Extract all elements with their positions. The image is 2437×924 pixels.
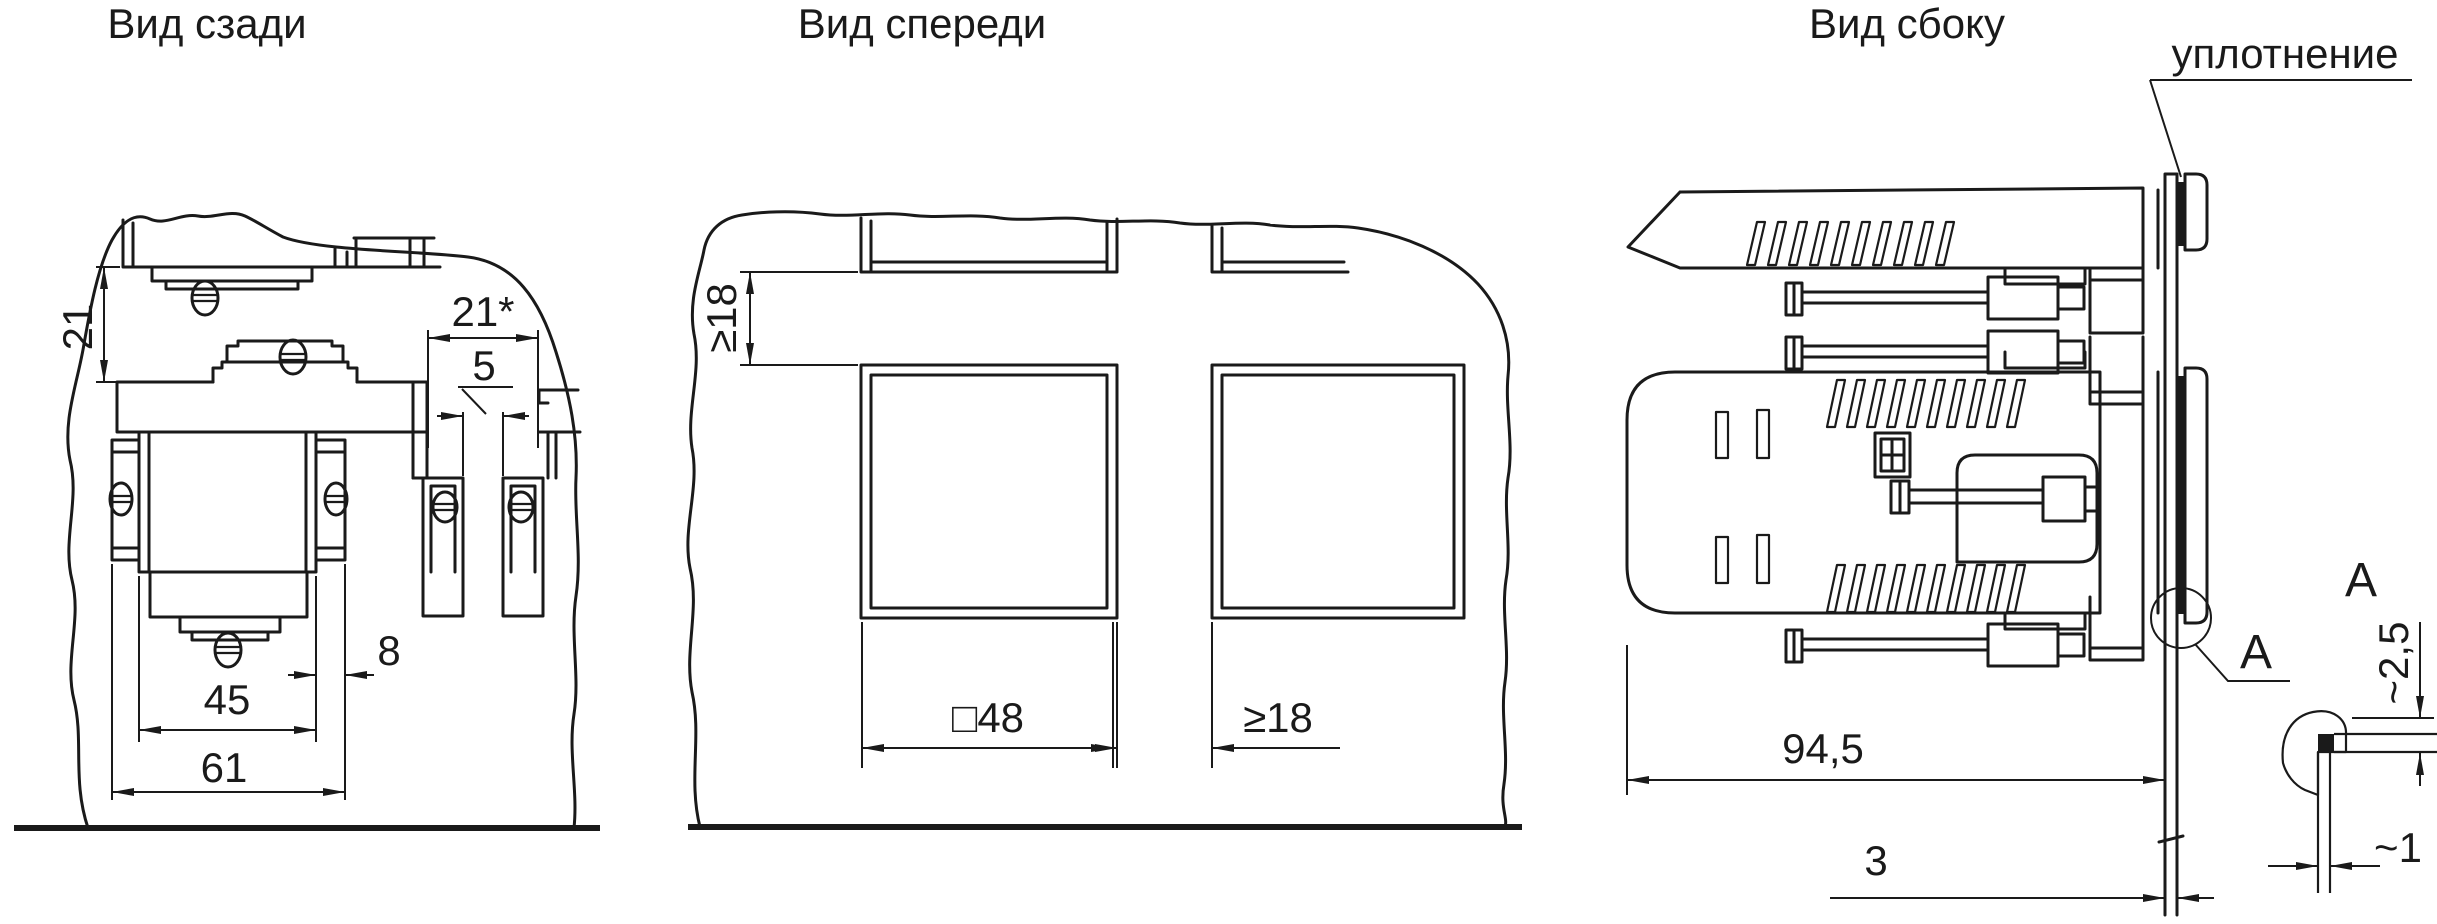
rear-left-bracket (109, 440, 139, 560)
front-dim-18h-label: ≥18 (1243, 694, 1313, 741)
rear-upper-unit (123, 220, 440, 315)
rear-dim-21-star-label: 21* (451, 288, 514, 335)
front-dim-48: □48 (862, 622, 1113, 768)
rear-dim-21-label: 21 (54, 304, 101, 351)
detail-marker: А (2151, 588, 2290, 681)
seal-compressed-zone (2318, 734, 2334, 752)
side-dim-3-label: 3 (1864, 837, 1887, 884)
side-dim-94-5-label: 94,5 (1782, 725, 1864, 772)
detail-marker-a-label: А (2240, 626, 2272, 679)
rear-dim-8: 8 (288, 564, 401, 800)
seal-callout: уплотнение (2150, 30, 2412, 177)
rear-view-title: Вид сзади (107, 0, 306, 47)
screw-icon (279, 340, 307, 374)
front-cutout-right (1212, 365, 1464, 618)
screw-icon (433, 492, 457, 522)
rear-main-unit-body (117, 382, 427, 667)
side-view-title: Вид сбоку (1809, 0, 2005, 47)
rear-right-bracket (316, 440, 348, 560)
rear-dim-5-label: 5 (472, 342, 495, 389)
seal-callout-label: уплотнение (2172, 30, 2399, 77)
side-seal-strips (2177, 174, 2207, 623)
vent-slots-icon (1827, 380, 2025, 427)
rear-dim-61-label: 61 (201, 744, 248, 791)
rear-view: Вид сзади 21 (14, 0, 600, 828)
front-cutout-left (861, 365, 1117, 618)
terminal-window-icon (1875, 433, 1910, 477)
front-view: Вид спереди ≥18 □48 (688, 0, 1522, 827)
detail-dim-2-5: ~2,5 (2352, 622, 2434, 786)
technical-drawing: Вид сзади 21 (0, 0, 2437, 924)
rear-dim-5: 5 (437, 342, 529, 476)
side-dim-3: 3 (1830, 837, 2214, 898)
rear-adjacent-unit-fragment (413, 390, 580, 616)
front-view-title: Вид спереди (798, 0, 1047, 47)
rear-main-unit-top-clamp (213, 340, 357, 382)
detail-section-a-label: А (2345, 554, 2377, 607)
side-upper-unit (1628, 188, 2158, 268)
rear-dim-8-label: 8 (377, 627, 400, 674)
screw-icon (509, 492, 533, 522)
screw-icon (191, 281, 219, 315)
side-dim-94-5: 94,5 (1627, 645, 2165, 795)
vent-slots-icon (1827, 565, 2025, 612)
rear-dim-45-label: 45 (204, 676, 251, 723)
front-torn-panel-outline (688, 212, 1510, 827)
rear-dim-21: 21 (54, 267, 131, 382)
front-dim-18-vertical: ≥18 (698, 272, 858, 365)
side-bottom-clamp (1786, 597, 2143, 666)
side-lower-unit (1627, 372, 2158, 613)
rear-dim-45: 45 (139, 576, 316, 742)
detail-dim-1-label: ~1 (2374, 824, 2422, 871)
front-dim-48-label: □48 (952, 694, 1024, 741)
drawing-canvas: Вид сзади 21 (0, 0, 2437, 924)
side-view: Вид сбоку уплотнение (1627, 0, 2437, 915)
detail-dim-1: ~1 (2268, 824, 2422, 871)
seal-detail-section: А ~2,5 ~1 (2268, 554, 2437, 893)
vent-slots-icon (1747, 222, 1954, 265)
detail-dim-2-5-label: ~2,5 (2370, 622, 2417, 705)
front-dim-18-horizontal: ≥18 (1087, 622, 1340, 768)
front-dim-18v-label: ≥18 (698, 283, 745, 353)
screw-icon (214, 633, 242, 667)
